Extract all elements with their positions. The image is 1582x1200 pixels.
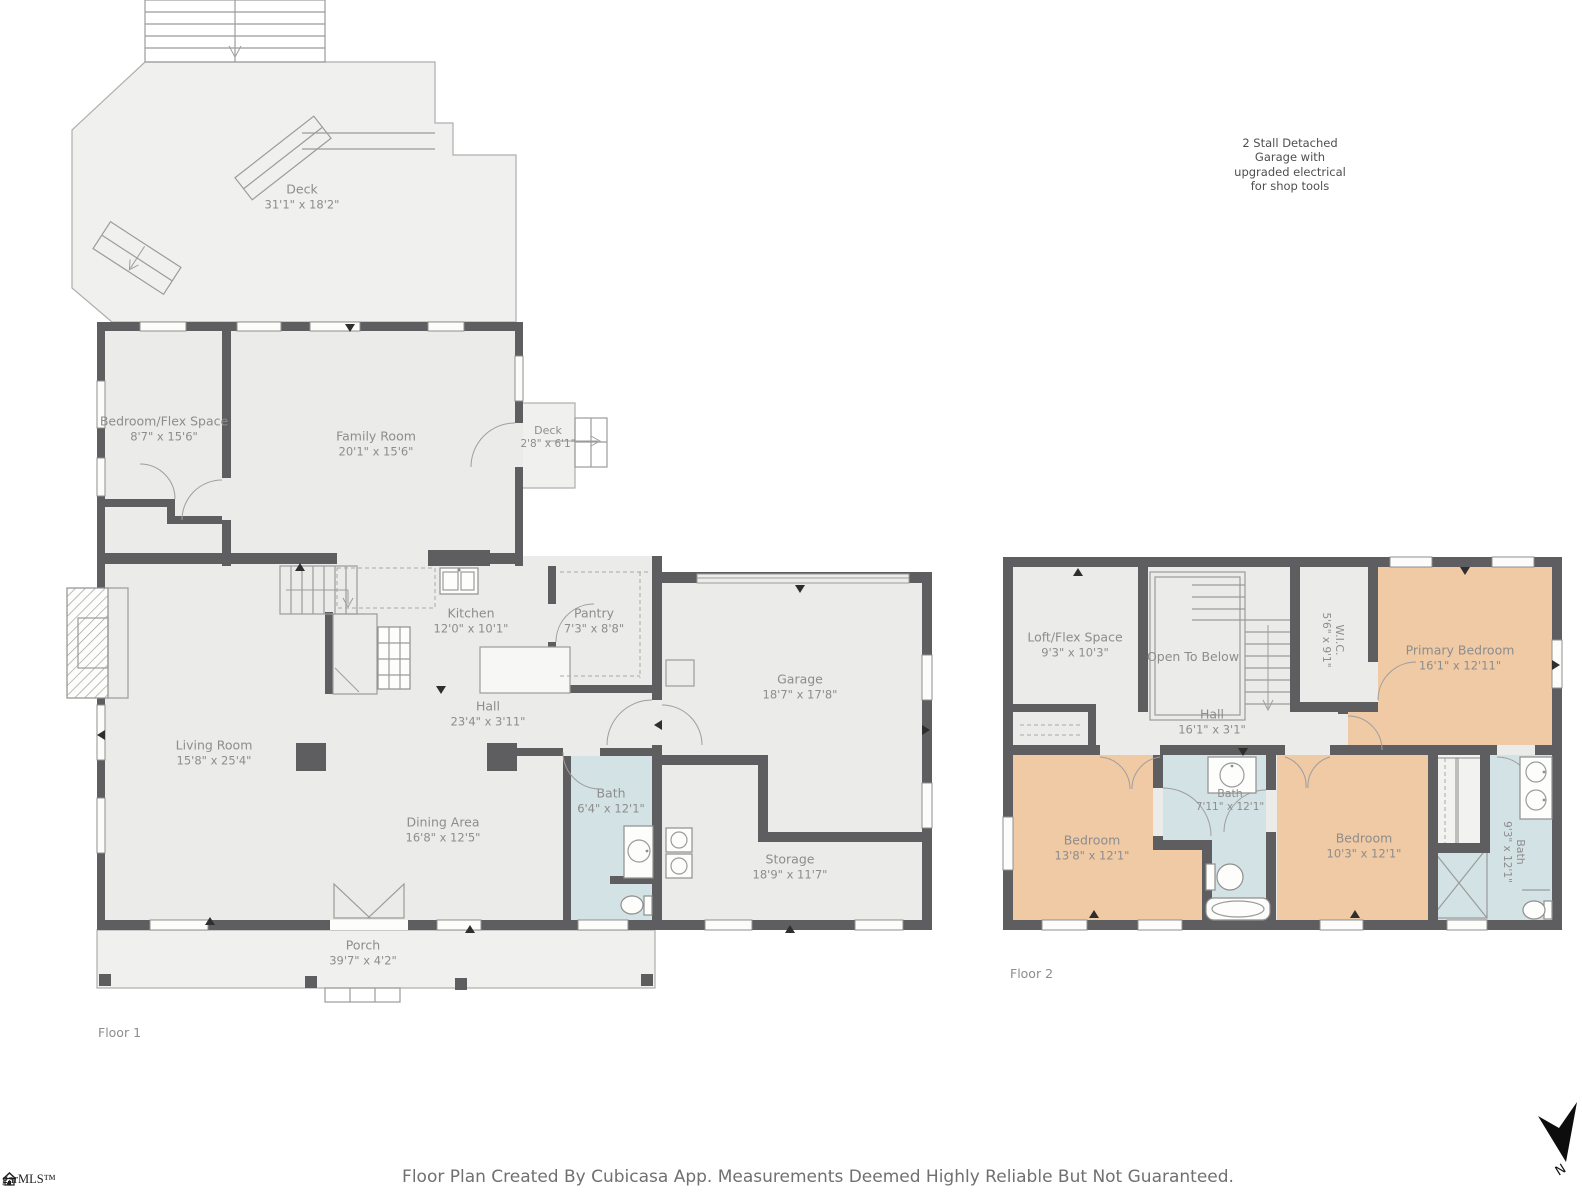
structural-post (296, 743, 326, 771)
room-label-primary-bedroom: Primary Bedroom 16'1" x 12'11" (1406, 642, 1515, 673)
north-arrow-icon (1538, 1102, 1577, 1162)
mls-logo: garMLS™ (2, 1172, 56, 1187)
room-label-porch: Porch 39'7" x 4'2" (329, 937, 397, 968)
porch-post (455, 978, 467, 990)
deck-large-shape (72, 0, 516, 322)
room-label-loft-flex: Loft/Flex Space 9'3" x 10'3" (1027, 629, 1122, 660)
floorplan: Deck 31'1" x 18'2" Bedroom/Flex Space 8'… (0, 0, 1582, 1200)
room-label-bedroom-flex: Bedroom/Flex Space 8'7" x 15'6" (100, 413, 228, 444)
porch-post (641, 974, 653, 986)
garage-door (697, 574, 909, 583)
room-label-bath1: Bath 6'4" x 12'1" (577, 785, 645, 816)
footer-disclaimer: Floor Plan Created By Cubicasa App. Meas… (402, 1167, 1234, 1187)
floor2-plan (1003, 557, 1562, 930)
room-label-living-room: Living Room 15'8" x 25'4" (176, 737, 253, 768)
room-label-bedroom-right: Bedroom 10'3" x 12'1" (1327, 830, 1402, 861)
structural-post (487, 743, 517, 771)
room-label-storage: Storage 18'9" x 11'7" (753, 851, 828, 882)
garage-note: 2 Stall Detached Garage with upgraded el… (1234, 136, 1346, 194)
floor1-tag: Floor 1 (98, 1025, 141, 1040)
deck-stairs-icon (145, 0, 325, 62)
room-label-family-room: Family Room 20'1" x 15'6" (336, 428, 416, 459)
room-label-deck-small: Deck 2'8" x 6'1" (520, 424, 575, 452)
stove-icon (378, 627, 410, 689)
kitchen-sink-icon (440, 568, 478, 594)
room-label-hall1: Hall 23'4" x 3'11" (451, 698, 526, 729)
chimney-block (428, 550, 490, 566)
room-label-kitchen: Kitchen 12'0" x 10'1" (434, 605, 509, 636)
sink-icon (624, 826, 653, 878)
room-label-open-to-below: Open To Below (1147, 649, 1239, 665)
toilet-icon (1523, 901, 1552, 919)
porch-steps-icon (325, 988, 400, 1002)
room-label-pantry: Pantry 7'3" x 8'8" (564, 605, 624, 636)
porch-post (99, 974, 111, 986)
room-label-bath-middle: Bath 7'11" x 12'1" (1196, 787, 1264, 815)
toilet-icon (621, 896, 652, 915)
floor2-tag: Floor 2 (1010, 966, 1053, 981)
room-label-wic: W.I.C. 5'6" x 9'1" (1318, 612, 1346, 667)
bathtub-icon (1206, 898, 1270, 920)
room-label-hall2: Hall 16'1" x 3'1" (1178, 706, 1246, 737)
double-sink-icon (1520, 757, 1552, 819)
toilet-icon (1206, 864, 1243, 890)
room-label-bath-right: Bath 9'3" x 12'1" (1499, 821, 1527, 883)
room-label-dining-area: Dining Area 16'8" x 12'5" (406, 814, 481, 845)
room-label-bedroom-left: Bedroom 13'8" x 12'1" (1055, 832, 1130, 863)
porch-post (305, 976, 317, 988)
room-label-deck: Deck 31'1" x 18'2" (265, 181, 340, 212)
bath1-fixtures (621, 826, 653, 915)
bedroom-left-nook (1160, 848, 1205, 920)
kitchen-island (480, 647, 570, 693)
room-label-garage: Garage 18'7" x 17'8" (763, 671, 838, 702)
house-icon (2, 1172, 17, 1186)
